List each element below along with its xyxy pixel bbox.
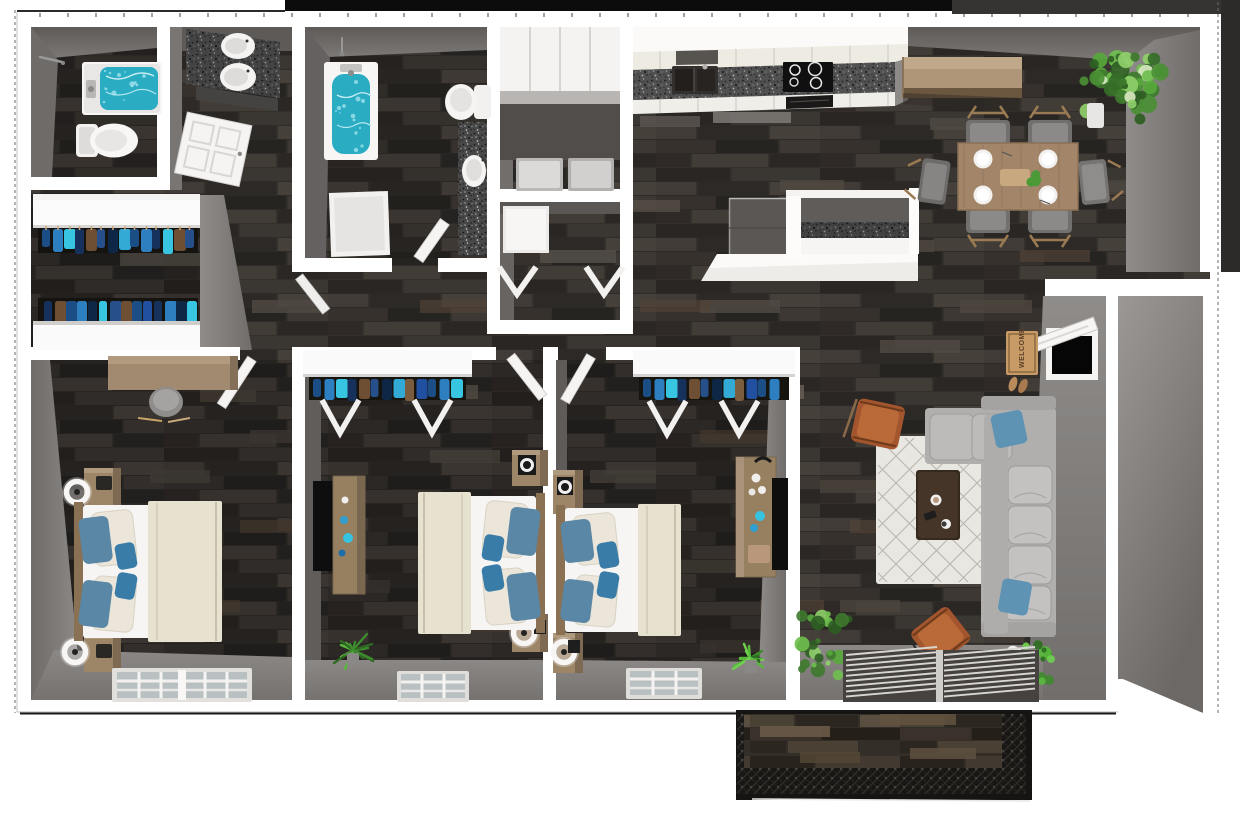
svg-text:WELCOME: WELCOME (1019, 328, 1026, 368)
